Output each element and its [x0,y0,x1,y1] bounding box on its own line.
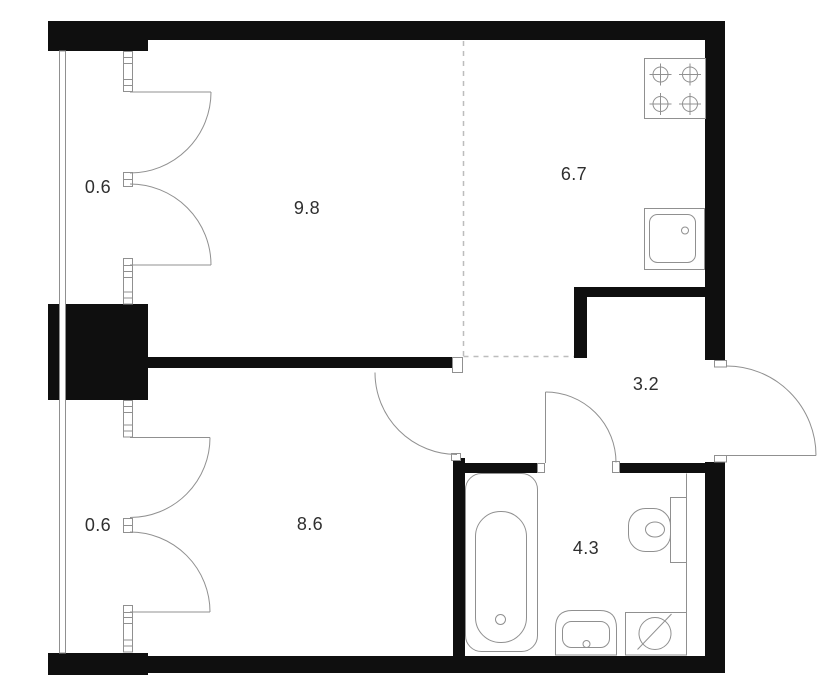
wall-segment [48,653,148,675]
wall-segment [618,463,705,473]
room-label-balcony-bottom: 0.6 [85,515,111,535]
bathroom-sink-icon [556,611,617,656]
stove-icon [645,59,706,119]
open-plan-divider [464,41,575,357]
balcony-door-top [130,92,211,265]
wall-segment [148,357,453,368]
wall-segment [705,462,725,673]
door-jamb [453,358,463,373]
wall-segment [705,21,725,360]
door-arc [130,438,210,518]
washing-machine-icon [626,613,687,656]
door-arc [130,532,210,612]
door-arc [130,92,211,173]
room-label-bedroom: 8.6 [297,514,323,534]
door-arc [130,184,211,265]
room-label-bathroom: 4.3 [573,538,599,558]
door-jamb [613,462,620,473]
door-arc [375,373,457,455]
door-jamb [715,361,727,368]
wall-segment [574,287,725,297]
wall-segment [465,463,538,473]
wall-segment [148,21,725,40]
toilet-icon [629,498,687,563]
balcony-door-bottom [130,438,210,613]
bathtub-icon [466,474,538,652]
wall-segment [574,297,587,358]
stove-body [645,59,706,119]
bathroom-door [538,392,620,473]
window-segment [124,401,133,438]
wall-segment [453,458,465,657]
floor-plan: 0.6 9.8 6.7 3.2 0.6 8.6 4.3 [0,0,840,700]
balcony-outer-wall [60,51,66,653]
toilet-cistern [671,498,687,563]
washer-body [626,613,687,656]
wall-segment [148,656,725,673]
room-label-living-room: 9.8 [294,198,320,218]
door-jamb [124,606,133,613]
door-jamb [538,464,545,473]
door-jamb [124,259,133,266]
room-label-kitchen: 6.7 [561,164,587,184]
sink-body [556,611,617,656]
door-arc [727,366,817,456]
door-jamb [715,456,727,463]
door-arc [546,392,617,463]
wall-segment [48,21,148,51]
entrance-door [715,361,817,463]
living-room-door [375,358,463,461]
floor-plan-drawing: 0.6 9.8 6.7 3.2 0.6 8.6 4.3 [0,0,840,700]
room-label-hallway: 3.2 [633,374,659,394]
room-label-balcony-top: 0.6 [85,177,111,197]
kitchen-sink-icon [645,209,705,270]
walls [48,21,725,675]
